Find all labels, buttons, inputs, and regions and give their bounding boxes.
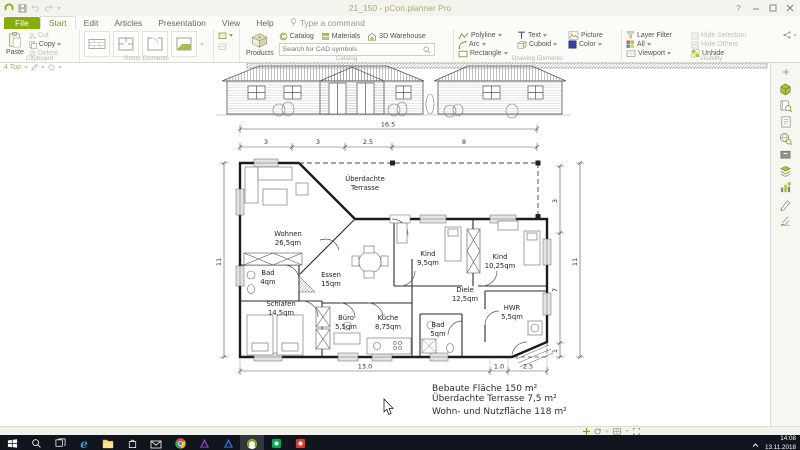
pan-icon[interactable]	[583, 422, 590, 440]
tab-help[interactable]: Help	[248, 17, 281, 29]
camtasia-icon[interactable]	[264, 435, 288, 450]
floor-plan[interactable]: Überdachte Terrasse Wohnen26,5qm Bad4qm …	[215, 121, 584, 418]
cuboid-icon	[517, 40, 527, 49]
save-button[interactable]	[18, 4, 27, 13]
app-triangle-purple-icon[interactable]	[192, 435, 216, 450]
tab-presentation[interactable]: Presentation	[150, 17, 214, 29]
pcon-planner-taskbar-icon[interactable]	[240, 435, 264, 450]
materials-link[interactable]: Materials	[321, 32, 360, 41]
svg-text:1: 1	[551, 349, 559, 353]
floor-plan-icon	[117, 35, 135, 53]
hide-selection-button[interactable]: Hide Selection	[691, 32, 746, 39]
svg-text:3: 3	[551, 199, 559, 203]
clock-time: 14:08	[765, 435, 796, 443]
floor-plan-button[interactable]	[113, 31, 139, 57]
summary-line: Wohn- und Nutzfläche 118 m²	[432, 407, 567, 417]
catalog-panel-button[interactable]	[778, 98, 793, 112]
quick-access-toolbar	[0, 3, 61, 13]
tab-start[interactable]: Start	[40, 16, 76, 29]
tab-file[interactable]: File	[4, 17, 40, 29]
layer-all-button[interactable]: All	[626, 41, 688, 48]
cad-drawing[interactable]: Überdachte Terrasse Wohnen26,5qm Bad4qm …	[0, 63, 770, 426]
room-elements-more-caret[interactable]	[200, 43, 204, 46]
titlebar: 21_150 - pCon.planner Pro ?	[0, 0, 800, 16]
room-label: Kind	[493, 253, 508, 261]
taskbar-clock[interactable]: 14:08 13.11.2018	[765, 435, 796, 450]
svg-text:2.5: 2.5	[523, 363, 533, 371]
room-label: Überdachte	[345, 174, 385, 183]
opening-button[interactable]	[142, 31, 168, 57]
command-search[interactable]: Type a command	[290, 17, 365, 29]
svg-text:10,25qm: 10,25qm	[485, 262, 516, 270]
terrace-outline[interactable]	[299, 163, 538, 219]
copy-icon	[29, 41, 37, 49]
svg-text:16.5: 16.5	[381, 121, 395, 129]
ribbon: Paste Cut Copy Delete Clipboard	[0, 29, 800, 63]
store-icon[interactable]	[120, 435, 144, 450]
projection-icon[interactable]	[48, 64, 55, 71]
products-button[interactable]: Products	[244, 31, 276, 57]
svg-text:14,5qm: 14,5qm	[268, 309, 294, 317]
viewport-layout-icon[interactable]	[613, 422, 621, 440]
ribbon-group-drawing: Polyline Arc Rectangle Text	[454, 29, 622, 62]
system-tray: 14:08 13.11.2018	[752, 435, 800, 450]
arc-icon	[458, 41, 467, 49]
app-statusbar	[0, 426, 800, 435]
ribbon-group-catalog: Products Catalog Materials 3D Warehouse	[240, 29, 454, 62]
pcon-planner-window: 21_150 - pCon.planner Pro ? File Start E…	[0, 0, 800, 450]
svg-text:5qm: 5qm	[430, 330, 446, 338]
tab-view[interactable]: View	[214, 17, 248, 29]
hide-selection-icon	[691, 32, 699, 40]
cuboid-caret[interactable]	[553, 43, 557, 46]
app-triangle-blue-icon[interactable]	[216, 435, 240, 450]
taskbar-search-button[interactable]	[24, 435, 48, 450]
clock-date: 13.11.2018	[765, 444, 796, 450]
search-icon[interactable]	[423, 46, 431, 54]
svg-text:5,5qm: 5,5qm	[501, 313, 523, 321]
ribbon-group-visibility: Layer Filter All Viewport Hide Selection	[622, 29, 800, 62]
svg-text:3: 3	[264, 138, 268, 146]
ribbon-group-clipboard: Paste Cut Copy Delete Clipboard	[0, 29, 80, 62]
svg-text:7: 7	[551, 288, 559, 292]
svg-text:1.0: 1.0	[494, 363, 504, 371]
paste-icon	[7, 31, 23, 48]
viewport-layout-caret[interactable]	[625, 430, 629, 433]
arc-caret[interactable]	[482, 43, 486, 46]
sketch-button[interactable]	[778, 214, 793, 228]
svg-text:15qm: 15qm	[321, 280, 341, 288]
arc-button[interactable]: Arc	[458, 41, 514, 48]
picture-icon	[568, 31, 579, 40]
tray-chevron-icon[interactable]	[752, 435, 759, 450]
svg-text:9,5qm: 9,5qm	[417, 259, 439, 267]
svg-text:3: 3	[316, 138, 320, 146]
fullscreen-icon[interactable]	[633, 422, 640, 440]
text-caret[interactable]	[543, 34, 547, 37]
drawer-button[interactable]	[778, 148, 793, 162]
ribbon-group-room-tools	[214, 29, 240, 62]
svg-text:13.0: 13.0	[358, 363, 372, 371]
room-label: Bad	[431, 321, 444, 329]
room-label: Terrasse	[350, 184, 379, 192]
wall-button[interactable]	[84, 31, 110, 57]
filter-icon	[626, 31, 635, 40]
room-label: HWR	[504, 304, 521, 312]
close-button[interactable]	[782, 2, 797, 15]
layers-button[interactable]	[778, 164, 793, 178]
share-caret[interactable]	[793, 34, 797, 37]
cuboid-button[interactable]: Cuboid	[517, 41, 565, 48]
bulb-icon	[290, 18, 297, 29]
room-label: Küche	[378, 314, 399, 322]
statistics-button[interactable]	[778, 181, 793, 195]
file-explorer-icon[interactable]	[96, 435, 120, 450]
divider-icon	[218, 43, 227, 51]
polyline-caret[interactable]	[498, 34, 502, 37]
tab-articles[interactable]: Articles	[106, 17, 150, 29]
viewport-name[interactable]: 4 Top	[4, 64, 21, 71]
quick-access-menu-caret[interactable]	[57, 7, 61, 10]
products-icon	[250, 31, 269, 49]
room-label: Büro	[338, 314, 354, 322]
redo-button[interactable]	[44, 4, 53, 12]
room-label: Diele	[456, 286, 473, 294]
svg-text:2.5: 2.5	[363, 138, 373, 146]
room-3d-icon	[175, 35, 193, 53]
svg-text:4qm: 4qm	[260, 278, 276, 286]
color-icon	[568, 40, 577, 49]
pcon-logo-icon	[4, 3, 14, 13]
room-divider-button[interactable]	[218, 43, 233, 50]
svg-text:8,75qm: 8,75qm	[375, 323, 401, 331]
svg-text:11: 11	[571, 258, 579, 266]
start-button[interactable]	[0, 435, 24, 450]
svg-text:11: 11	[215, 258, 223, 266]
summary-line: Überdachte Terrasse 7,5 m²	[432, 393, 557, 404]
color-caret[interactable]	[598, 43, 602, 46]
layer-all-caret[interactable]	[647, 43, 651, 46]
summary-line: Bebaute Fläche 150 m²	[432, 384, 538, 394]
orbit-caret[interactable]	[605, 430, 609, 433]
cut-button[interactable]: Cut	[29, 32, 61, 39]
polyline-button[interactable]: Polyline	[458, 32, 514, 39]
svg-text:26,5qm: 26,5qm	[275, 239, 301, 247]
right-tool-panel	[770, 63, 800, 426]
materials-icon	[321, 32, 330, 41]
layer-filter-label: Layer Filter	[626, 32, 688, 39]
text-button[interactable]: Text	[517, 32, 565, 39]
color-button[interactable]: Color	[568, 41, 612, 48]
maximize-button[interactable]	[765, 2, 780, 15]
chrome-icon[interactable]	[168, 435, 192, 450]
ribbon-tabbar: File Start Edit Articles Presentation Vi…	[0, 16, 800, 29]
wall-icon	[88, 35, 106, 53]
render-mode-pencil-icon[interactable]	[31, 64, 38, 71]
projection-caret[interactable]	[58, 66, 62, 69]
workspace: 4 Top	[0, 63, 800, 426]
catalog-link[interactable]: Catalog	[279, 32, 314, 41]
room-label: Wohnen	[274, 230, 302, 238]
text-icon	[517, 31, 526, 40]
web-catalog-search-button[interactable]	[778, 131, 793, 145]
ribbon-group-room-elements: Room Elements	[80, 29, 214, 62]
viewport-controls[interactable]: 4 Top	[4, 64, 62, 71]
share-icon	[783, 31, 791, 39]
room-label: Schlafen	[266, 300, 295, 308]
svg-text:12,5qm: 12,5qm	[452, 295, 478, 303]
drawing-canvas[interactable]: 4 Top	[0, 63, 770, 426]
help-button[interactable]: ?	[731, 2, 746, 15]
cad-symbol-search-input[interactable]	[283, 46, 423, 53]
picture-button[interactable]: Picture	[568, 32, 612, 39]
warehouse-link[interactable]: 3D Warehouse	[367, 32, 425, 41]
annotation-pen-button[interactable]	[778, 197, 793, 211]
copy-button[interactable]: Copy	[29, 41, 61, 48]
tab-edit[interactable]: Edit	[76, 17, 107, 29]
opening-icon	[146, 35, 164, 53]
element-browser-button[interactable]	[778, 82, 793, 96]
window-controls: ?	[731, 2, 800, 15]
hide-others-icon	[691, 41, 699, 49]
elevation-side[interactable]	[434, 66, 566, 118]
svg-text:8: 8	[462, 138, 466, 146]
room-label: Bad	[261, 269, 274, 277]
article-list-button[interactable]	[778, 115, 793, 129]
mail-icon[interactable]	[144, 435, 168, 450]
svg-text:5,5qm: 5,5qm	[335, 323, 357, 331]
room-3d-button[interactable]	[171, 31, 197, 57]
add-panel-button[interactable]	[778, 65, 793, 79]
cut-icon	[29, 32, 36, 39]
polyline-icon	[458, 32, 469, 40]
room-level-caret[interactable]	[229, 34, 233, 37]
windows-taskbar: e 14:08 13.11.2018	[0, 435, 800, 450]
render-mode-caret[interactable]	[41, 66, 45, 69]
copy-menu-caret[interactable]	[57, 43, 61, 46]
catalog-icon	[279, 32, 288, 41]
edge-icon[interactable]: e	[72, 435, 96, 450]
orbit-icon[interactable]	[594, 422, 601, 440]
undo-button[interactable]	[31, 4, 40, 12]
room-level-button[interactable]	[218, 32, 233, 39]
share-button[interactable]	[783, 31, 797, 39]
area-summary: Bebaute Fläche 150 m² Überdachte Terrass…	[432, 384, 567, 417]
minimize-button[interactable]	[748, 2, 763, 15]
layer-grid-icon	[626, 40, 635, 49]
room-label: Essen	[321, 271, 341, 279]
level-icon	[218, 32, 227, 40]
hide-others-button[interactable]: Hide Others	[691, 41, 746, 48]
paste-button[interactable]: Paste	[4, 31, 26, 56]
mouse-cursor	[384, 399, 393, 414]
room-label: Kind	[421, 250, 436, 258]
task-view-button[interactable]	[48, 435, 72, 450]
window-title: 21_150 - pCon.planner Pro	[0, 3, 800, 13]
elevation-front[interactable]	[222, 66, 434, 116]
recorder-icon[interactable]	[288, 435, 312, 450]
warehouse-icon	[367, 32, 377, 41]
viewport-name-caret[interactable]	[24, 66, 28, 69]
